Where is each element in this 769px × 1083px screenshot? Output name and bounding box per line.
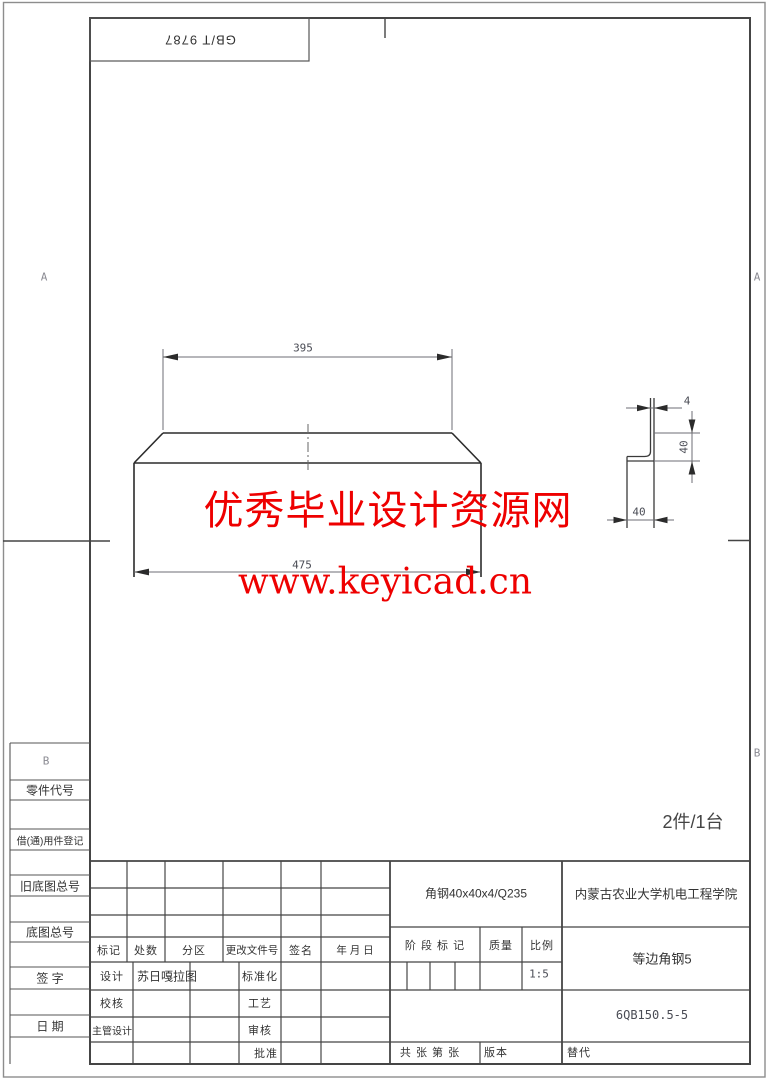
dim-label-thickness: 4 [684, 395, 691, 408]
chief-designer-label: 主管设计 [92, 1023, 132, 1038]
margin-label-borrowed: 借(通)用件登记 [17, 833, 84, 848]
drawing-number: 6QB150.5-5 [616, 1008, 688, 1022]
quantity-note: 2件/1台 [662, 808, 723, 834]
sheets-note: 共 张 第 张 [400, 1044, 460, 1060]
margin-label-old-master: 旧底图总号 [20, 878, 80, 895]
zone-marker-b-right: B [754, 747, 761, 760]
zone-marker-a-right: A [754, 271, 761, 284]
zone-marker-b-left: B [43, 755, 50, 768]
designer-name: 苏日嘎拉图 [137, 968, 197, 985]
part-name: 等边角钢5 [632, 949, 691, 968]
rev-header-zone: 分区 [182, 942, 206, 958]
material-spec: 角钢40x40x4/Q235 [425, 885, 527, 902]
dim-label-top-length: 395 [293, 342, 313, 355]
technical-drawing-svg [0, 0, 769, 1083]
rev-header-date: 年 月 日 [336, 943, 373, 958]
outer-border [4, 3, 766, 1078]
margin-label-master: 底图总号 [26, 924, 74, 941]
mass-label: 质量 [489, 937, 513, 953]
dim-label-leg-height: 40 [678, 440, 691, 453]
review-label: 审核 [248, 1022, 272, 1038]
designer-label: 设计 [100, 968, 124, 984]
margin-label-signature: 签 字 [36, 970, 63, 987]
version-label: 版本 [484, 1044, 508, 1060]
standardization-label: 标准化 [242, 968, 278, 984]
stage-mark-label: 阶 段 标 记 [405, 937, 465, 953]
school-name: 内蒙古农业大学机电工程学院 [575, 884, 738, 903]
rev-header-doc-no: 更改文件号 [226, 943, 279, 958]
margin-label-date: 日 期 [36, 1018, 63, 1035]
watermark-site-url: www.keyicad.cn [238, 562, 532, 603]
approve-label: 批准 [254, 1045, 278, 1061]
rev-header-count: 处数 [134, 942, 158, 958]
rev-header-mark: 标记 [97, 942, 121, 958]
zone-marker-a-left: A [41, 271, 48, 284]
scale-value: 1:5 [529, 968, 549, 981]
dim-label-leg-width: 40 [632, 506, 645, 519]
process-label: 工艺 [248, 995, 272, 1011]
checker-label: 校核 [100, 995, 124, 1011]
drawing-sheet: GB/T 9787 A A B B 395 475 4 40 40 优秀毕业设计… [0, 0, 769, 1083]
watermark-site-name: 优秀毕业设计资源网 [204, 478, 573, 536]
margin-label-part-code: 零件代号 [26, 782, 74, 799]
scale-label: 比例 [530, 937, 554, 953]
replace-label: 替代 [567, 1044, 591, 1060]
standard-label: GB/T 9787 [164, 33, 236, 48]
rev-header-sign: 签名 [289, 942, 313, 958]
inner-frame [3, 18, 750, 1064]
